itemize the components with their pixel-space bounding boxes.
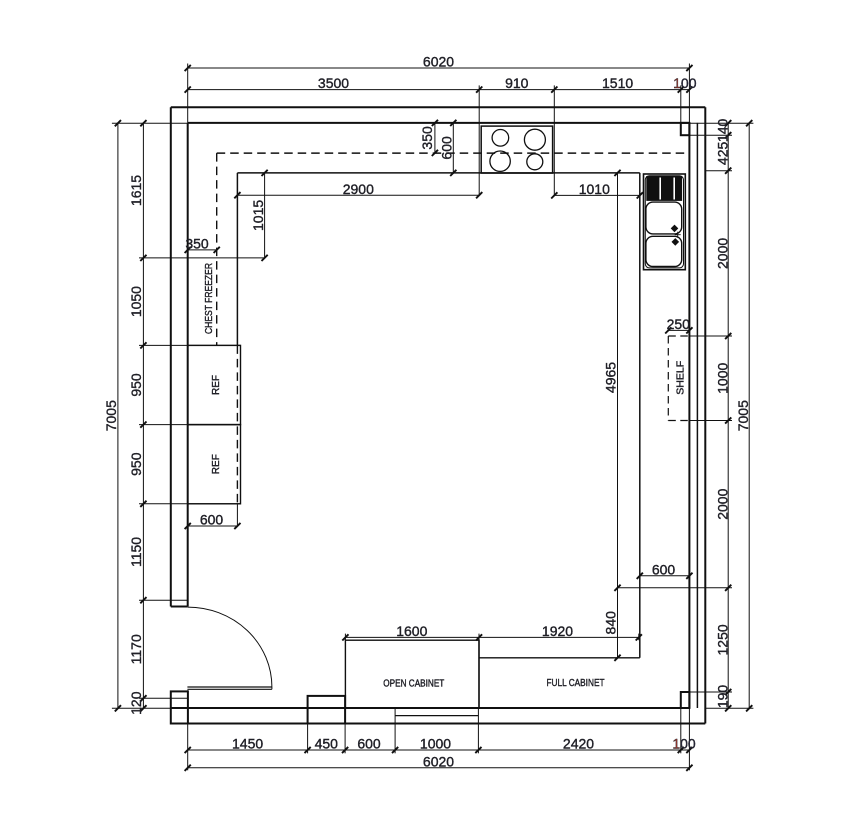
- svg-text:4965: 4965: [603, 362, 619, 393]
- svg-text:425: 425: [715, 142, 731, 166]
- svg-text:2420: 2420: [563, 736, 594, 752]
- svg-text:1615: 1615: [128, 175, 144, 206]
- svg-text:600: 600: [200, 512, 224, 528]
- svg-text:OPEN CABINET: OPEN CABINET: [383, 678, 444, 689]
- svg-text:REF: REF: [211, 375, 222, 395]
- svg-text:1150: 1150: [128, 537, 144, 567]
- svg-text:2000: 2000: [715, 488, 731, 519]
- svg-text:910: 910: [505, 75, 529, 91]
- svg-text:3500: 3500: [318, 75, 349, 91]
- svg-text:1050: 1050: [128, 286, 144, 317]
- svg-text:7005: 7005: [103, 400, 119, 431]
- svg-text:1000: 1000: [420, 736, 451, 752]
- svg-text:350: 350: [419, 126, 435, 150]
- svg-text:1600: 1600: [396, 623, 427, 639]
- svg-text:1015: 1015: [250, 200, 266, 231]
- svg-text:1510: 1510: [602, 75, 633, 91]
- svg-text:2900: 2900: [343, 181, 374, 197]
- svg-text:CHEST FREEZER: CHEST FREEZER: [204, 263, 215, 334]
- svg-text:950: 950: [128, 373, 144, 397]
- svg-text:600: 600: [357, 736, 381, 752]
- svg-text:600: 600: [652, 561, 676, 577]
- svg-text:2000: 2000: [715, 238, 731, 269]
- svg-text:SHELF: SHELF: [675, 361, 686, 395]
- svg-text:FULL CABINET: FULL CABINET: [547, 678, 605, 689]
- svg-text:190: 190: [715, 685, 731, 709]
- svg-text:250: 250: [667, 316, 691, 332]
- svg-text:1170: 1170: [128, 634, 144, 664]
- svg-text:950: 950: [128, 452, 144, 476]
- svg-text:350: 350: [185, 236, 209, 252]
- svg-text:6020: 6020: [423, 753, 454, 769]
- svg-text:1920: 1920: [542, 623, 573, 639]
- svg-text:840: 840: [603, 611, 619, 635]
- svg-text:100: 100: [673, 75, 697, 91]
- svg-text:120: 120: [128, 691, 144, 715]
- svg-text:1010: 1010: [579, 181, 610, 197]
- svg-text:100: 100: [672, 736, 696, 752]
- svg-text:450: 450: [315, 736, 339, 752]
- svg-text:1250: 1250: [715, 624, 731, 655]
- svg-text:600: 600: [439, 136, 455, 160]
- svg-text:1000: 1000: [715, 363, 731, 394]
- svg-text:140: 140: [715, 119, 731, 143]
- svg-text:6020: 6020: [423, 54, 454, 70]
- svg-text:1450: 1450: [232, 736, 263, 752]
- svg-text:REF: REF: [211, 454, 222, 474]
- svg-text:7005: 7005: [735, 400, 751, 431]
